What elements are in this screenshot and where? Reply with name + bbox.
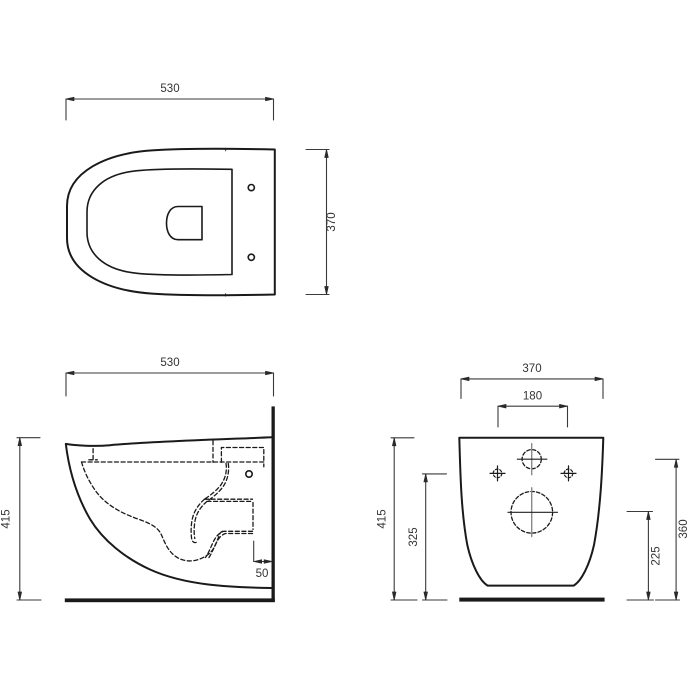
svg-text:415: 415 [377, 509, 389, 528]
svg-text:370: 370 [326, 212, 338, 231]
svg-text:415: 415 [1, 509, 13, 528]
svg-text:225: 225 [651, 546, 663, 565]
svg-text:325: 325 [408, 527, 420, 546]
svg-text:530: 530 [160, 357, 179, 369]
svg-text:370: 370 [522, 363, 541, 375]
svg-text:360: 360 [678, 519, 690, 538]
svg-text:530: 530 [160, 83, 179, 95]
svg-text:50: 50 [256, 568, 269, 580]
svg-text:180: 180 [523, 391, 542, 403]
